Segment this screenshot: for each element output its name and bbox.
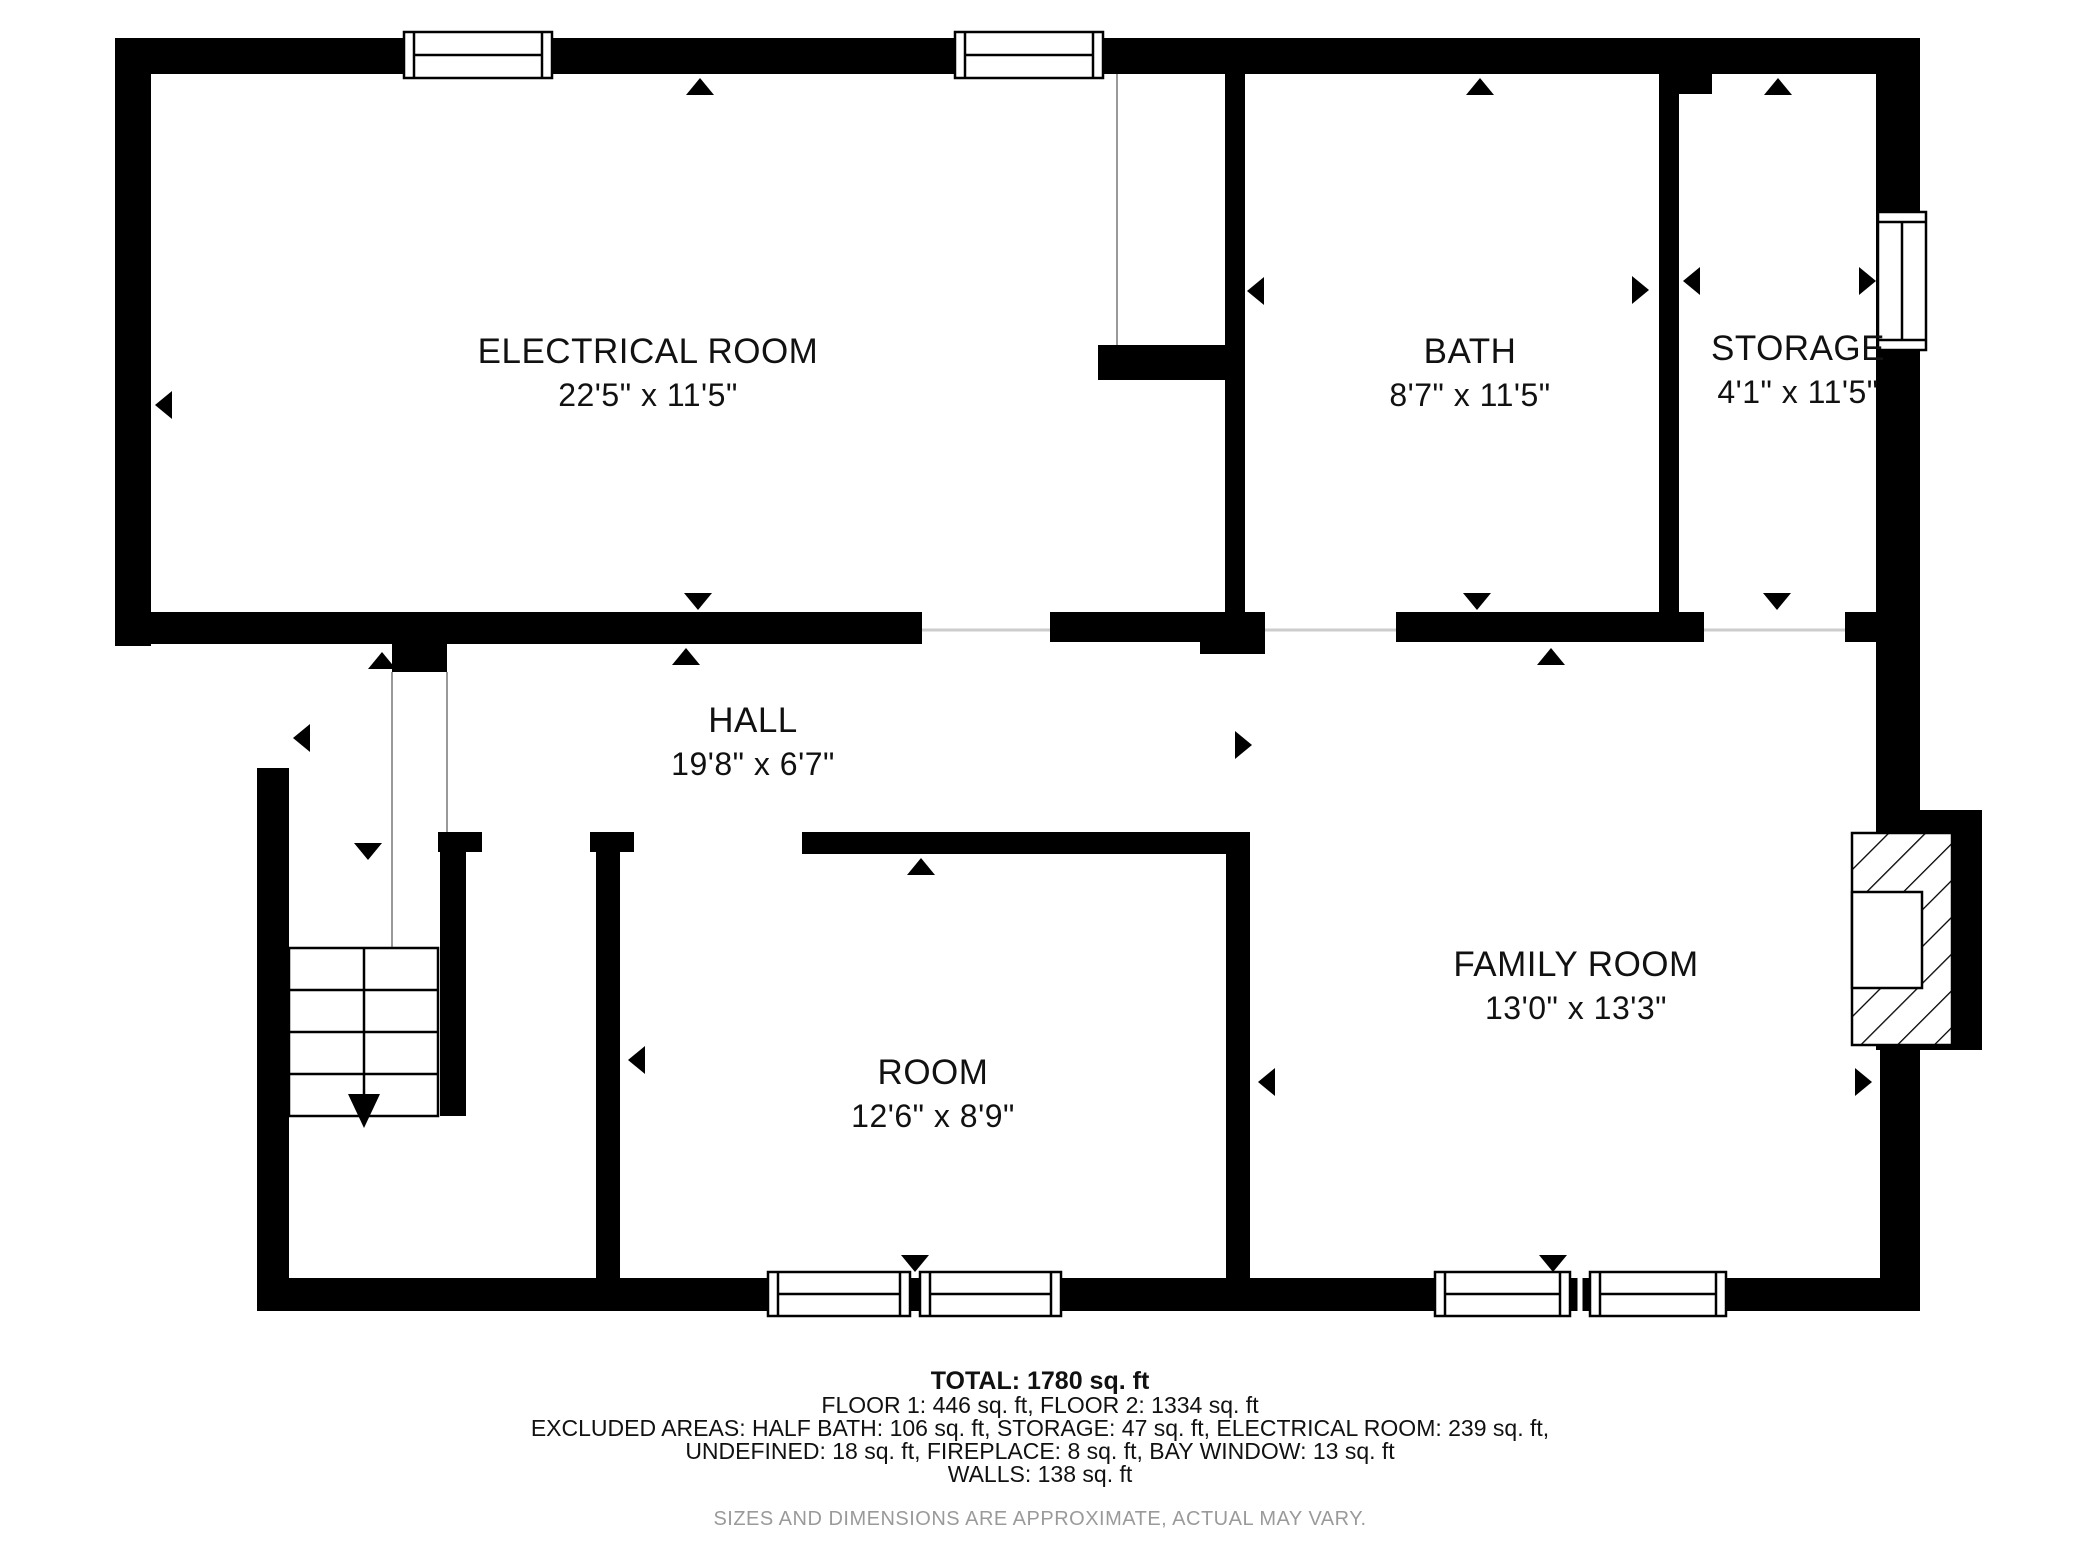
door-arrow-icon <box>155 391 172 419</box>
total-area-text: TOTAL: 1780 sq. ft <box>0 1368 2080 1394</box>
door-arrow-icon <box>1855 1068 1872 1096</box>
excluded-areas-text-line1: EXCLUDED AREAS: HALF BATH: 106 sq. ft, S… <box>0 1417 2080 1440</box>
door-arrow-icon <box>354 843 382 860</box>
room-dimensions-electrical-room: 22'5" x 11'5" <box>558 377 738 413</box>
stairs <box>289 948 438 1128</box>
door-arrow-icon <box>686 78 714 95</box>
room-dimensions-bath: 8'7" x 11'5" <box>1389 377 1550 413</box>
room-label-room: ROOM <box>878 1053 989 1092</box>
door-arrow-icon <box>1537 648 1565 665</box>
stairs-down-arrow-icon <box>348 1094 380 1128</box>
wall-segment <box>115 38 151 646</box>
door-direction-arrows <box>155 78 1876 1272</box>
fireplace <box>1852 833 1952 1045</box>
wall-segment <box>257 768 289 1278</box>
door-arrow-icon <box>1258 1068 1275 1096</box>
wall-segment <box>596 852 620 1278</box>
wall-segment <box>1679 74 1712 94</box>
door-arrow-icon <box>684 593 712 610</box>
door-arrow-icon <box>1683 267 1700 295</box>
window <box>404 32 552 78</box>
window <box>1878 212 1926 350</box>
wall-segment <box>1880 1050 1920 1311</box>
door-arrow-icon <box>1859 267 1876 295</box>
window <box>920 1272 1061 1316</box>
room-label-bath: BATH <box>1424 332 1517 371</box>
window <box>1590 1272 1726 1316</box>
floorplan-page: ELECTRICAL ROOM 22'5" x 11'5" BATH 8'7" … <box>0 0 2080 1560</box>
door-arrow-icon <box>293 724 310 752</box>
disclaimer-text: SIZES AND DIMENSIONS ARE APPROXIMATE, AC… <box>0 1508 2080 1531</box>
fireplace-firebox <box>1852 892 1922 988</box>
wall-segment <box>590 832 634 852</box>
floors-area-text: FLOOR 1: 446 sq. ft, FLOOR 2: 1334 sq. f… <box>0 1394 2080 1417</box>
door-arrow-icon <box>672 648 700 665</box>
wall-segment <box>438 832 482 852</box>
window <box>955 32 1103 78</box>
wall-segment <box>1226 832 1250 1278</box>
door-arrow-icon <box>368 652 396 669</box>
wall-segment <box>1876 38 1920 824</box>
floorplan-drawing: ELECTRICAL ROOM 22'5" x 11'5" BATH 8'7" … <box>0 0 2080 1560</box>
door-arrow-icon <box>1764 78 1792 95</box>
walls-area-text: WALLS: 138 sq. ft <box>0 1463 2080 1486</box>
door-arrow-icon <box>1247 277 1264 305</box>
walls <box>115 38 1982 1311</box>
room-dimensions-storage: 4'1" x 11'5" <box>1717 374 1878 410</box>
window <box>768 1272 910 1316</box>
room-label-hall: HALL <box>708 701 798 740</box>
window <box>1435 1272 1570 1316</box>
wall-segment <box>1225 74 1245 632</box>
area-summary: TOTAL: 1780 sq. ft FLOOR 1: 446 sq. ft, … <box>0 1368 2080 1531</box>
room-dimensions-room: 12'6" x 8'9" <box>851 1098 1015 1134</box>
door-arrow-icon <box>628 1046 645 1074</box>
wall-segment <box>1845 612 1920 642</box>
wall-segment <box>1098 345 1245 380</box>
door-arrow-icon <box>907 858 935 875</box>
door-arrow-icon <box>1632 276 1649 304</box>
wall-segment <box>440 852 466 1116</box>
door-arrow-icon <box>1539 1255 1567 1272</box>
room-label-family-room: FAMILY ROOM <box>1453 945 1698 984</box>
door-arrow-icon <box>1463 593 1491 610</box>
door-arrow-icon <box>1763 593 1791 610</box>
excluded-areas-text-line2: UNDEFINED: 18 sq. ft, FIREPLACE: 8 sq. f… <box>0 1440 2080 1463</box>
wall-segment <box>392 644 447 672</box>
partition-lines <box>392 74 1117 948</box>
room-dimensions-hall: 19'8" x 6'7" <box>671 746 835 782</box>
door-arrow-icon <box>1466 78 1494 95</box>
room-label-storage: STORAGE <box>1711 329 1885 368</box>
door-arrow-icon <box>1235 731 1252 759</box>
room-dimensions-family-room: 13'0" x 13'3" <box>1485 990 1667 1026</box>
wall-segment <box>1659 74 1679 612</box>
wall-segment <box>1396 612 1704 642</box>
wall-segment <box>115 612 922 644</box>
windows <box>404 32 1926 1316</box>
door-arrow-icon <box>901 1255 929 1272</box>
wall-segment <box>1200 642 1265 654</box>
room-label-electrical-room: ELECTRICAL ROOM <box>478 332 819 371</box>
wall-segment <box>802 832 1250 854</box>
